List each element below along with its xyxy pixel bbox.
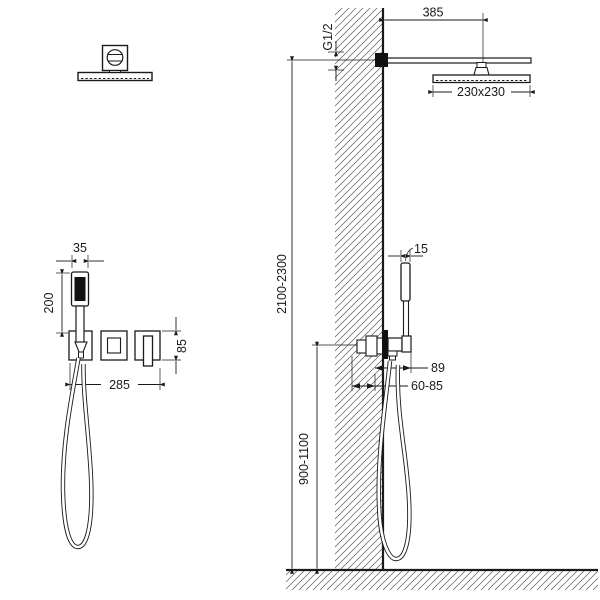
arm-wall-connector <box>375 53 388 67</box>
hose-outlet <box>388 351 397 356</box>
front-view-overhead-shower <box>78 46 152 81</box>
overhead-shower-plate-front <box>78 73 152 81</box>
handshower-front-handle <box>76 306 84 342</box>
head-joint-stem <box>477 63 486 68</box>
side-view: 2100-2300 900-1100 G1/2 385 230x230 <box>275 6 598 591</box>
valve-wall-plate <box>382 330 388 359</box>
diverter-square <box>108 338 121 353</box>
head-ball-joint-front <box>107 50 123 66</box>
dim-trim-height-label: 85 <box>175 339 189 353</box>
valve-embedded-nut <box>366 336 377 356</box>
dim-mixer-height-label: 900-1100 <box>297 433 311 485</box>
dim-trim-width-label: 285 <box>109 378 130 392</box>
floor-hatch <box>286 571 598 590</box>
head-joint-nut <box>474 68 489 76</box>
hose-loop-front-inner <box>63 358 91 547</box>
mixer-lever-handle <box>144 336 153 366</box>
handshower-holder-side <box>402 336 411 352</box>
dim15-leader <box>406 248 414 261</box>
dim-thread-label: G1/2 <box>321 23 335 50</box>
overhead-shower-plate-side <box>433 75 530 83</box>
dim89-arrow-right <box>403 365 411 371</box>
valve-embedded-end <box>357 340 366 353</box>
hose-nut-front <box>79 352 84 358</box>
hose-outlet-nut <box>390 356 396 360</box>
dim-handshower-side-width-label: 15 <box>414 242 428 256</box>
dim-height-overall-label: 2100-2300 <box>275 254 289 314</box>
valve-outer-body <box>388 338 402 351</box>
wall-hatch <box>335 8 383 570</box>
dim-head-size-label: 230x230 <box>457 85 505 99</box>
dim-projection-label: 89 <box>431 361 445 375</box>
handshower-side-head <box>401 263 410 301</box>
front-view-mixer: 35 200 85 285 <box>42 241 189 547</box>
dim-handshower-length-label: 200 <box>42 293 56 314</box>
dim-embed-depth-label: 60-85 <box>411 379 443 393</box>
hose-loop-front-outer <box>63 358 91 547</box>
shower-arm <box>386 58 531 63</box>
technical-drawing-page: 2100-2300 900-1100 G1/2 385 230x230 <box>0 0 600 600</box>
handshower-spray-face <box>75 277 86 301</box>
shower-installation-diagram: 2100-2300 900-1100 G1/2 385 230x230 <box>0 0 600 600</box>
dim-arm-length-label: 385 <box>423 6 444 20</box>
dim-handshower-width-label: 35 <box>73 241 87 255</box>
